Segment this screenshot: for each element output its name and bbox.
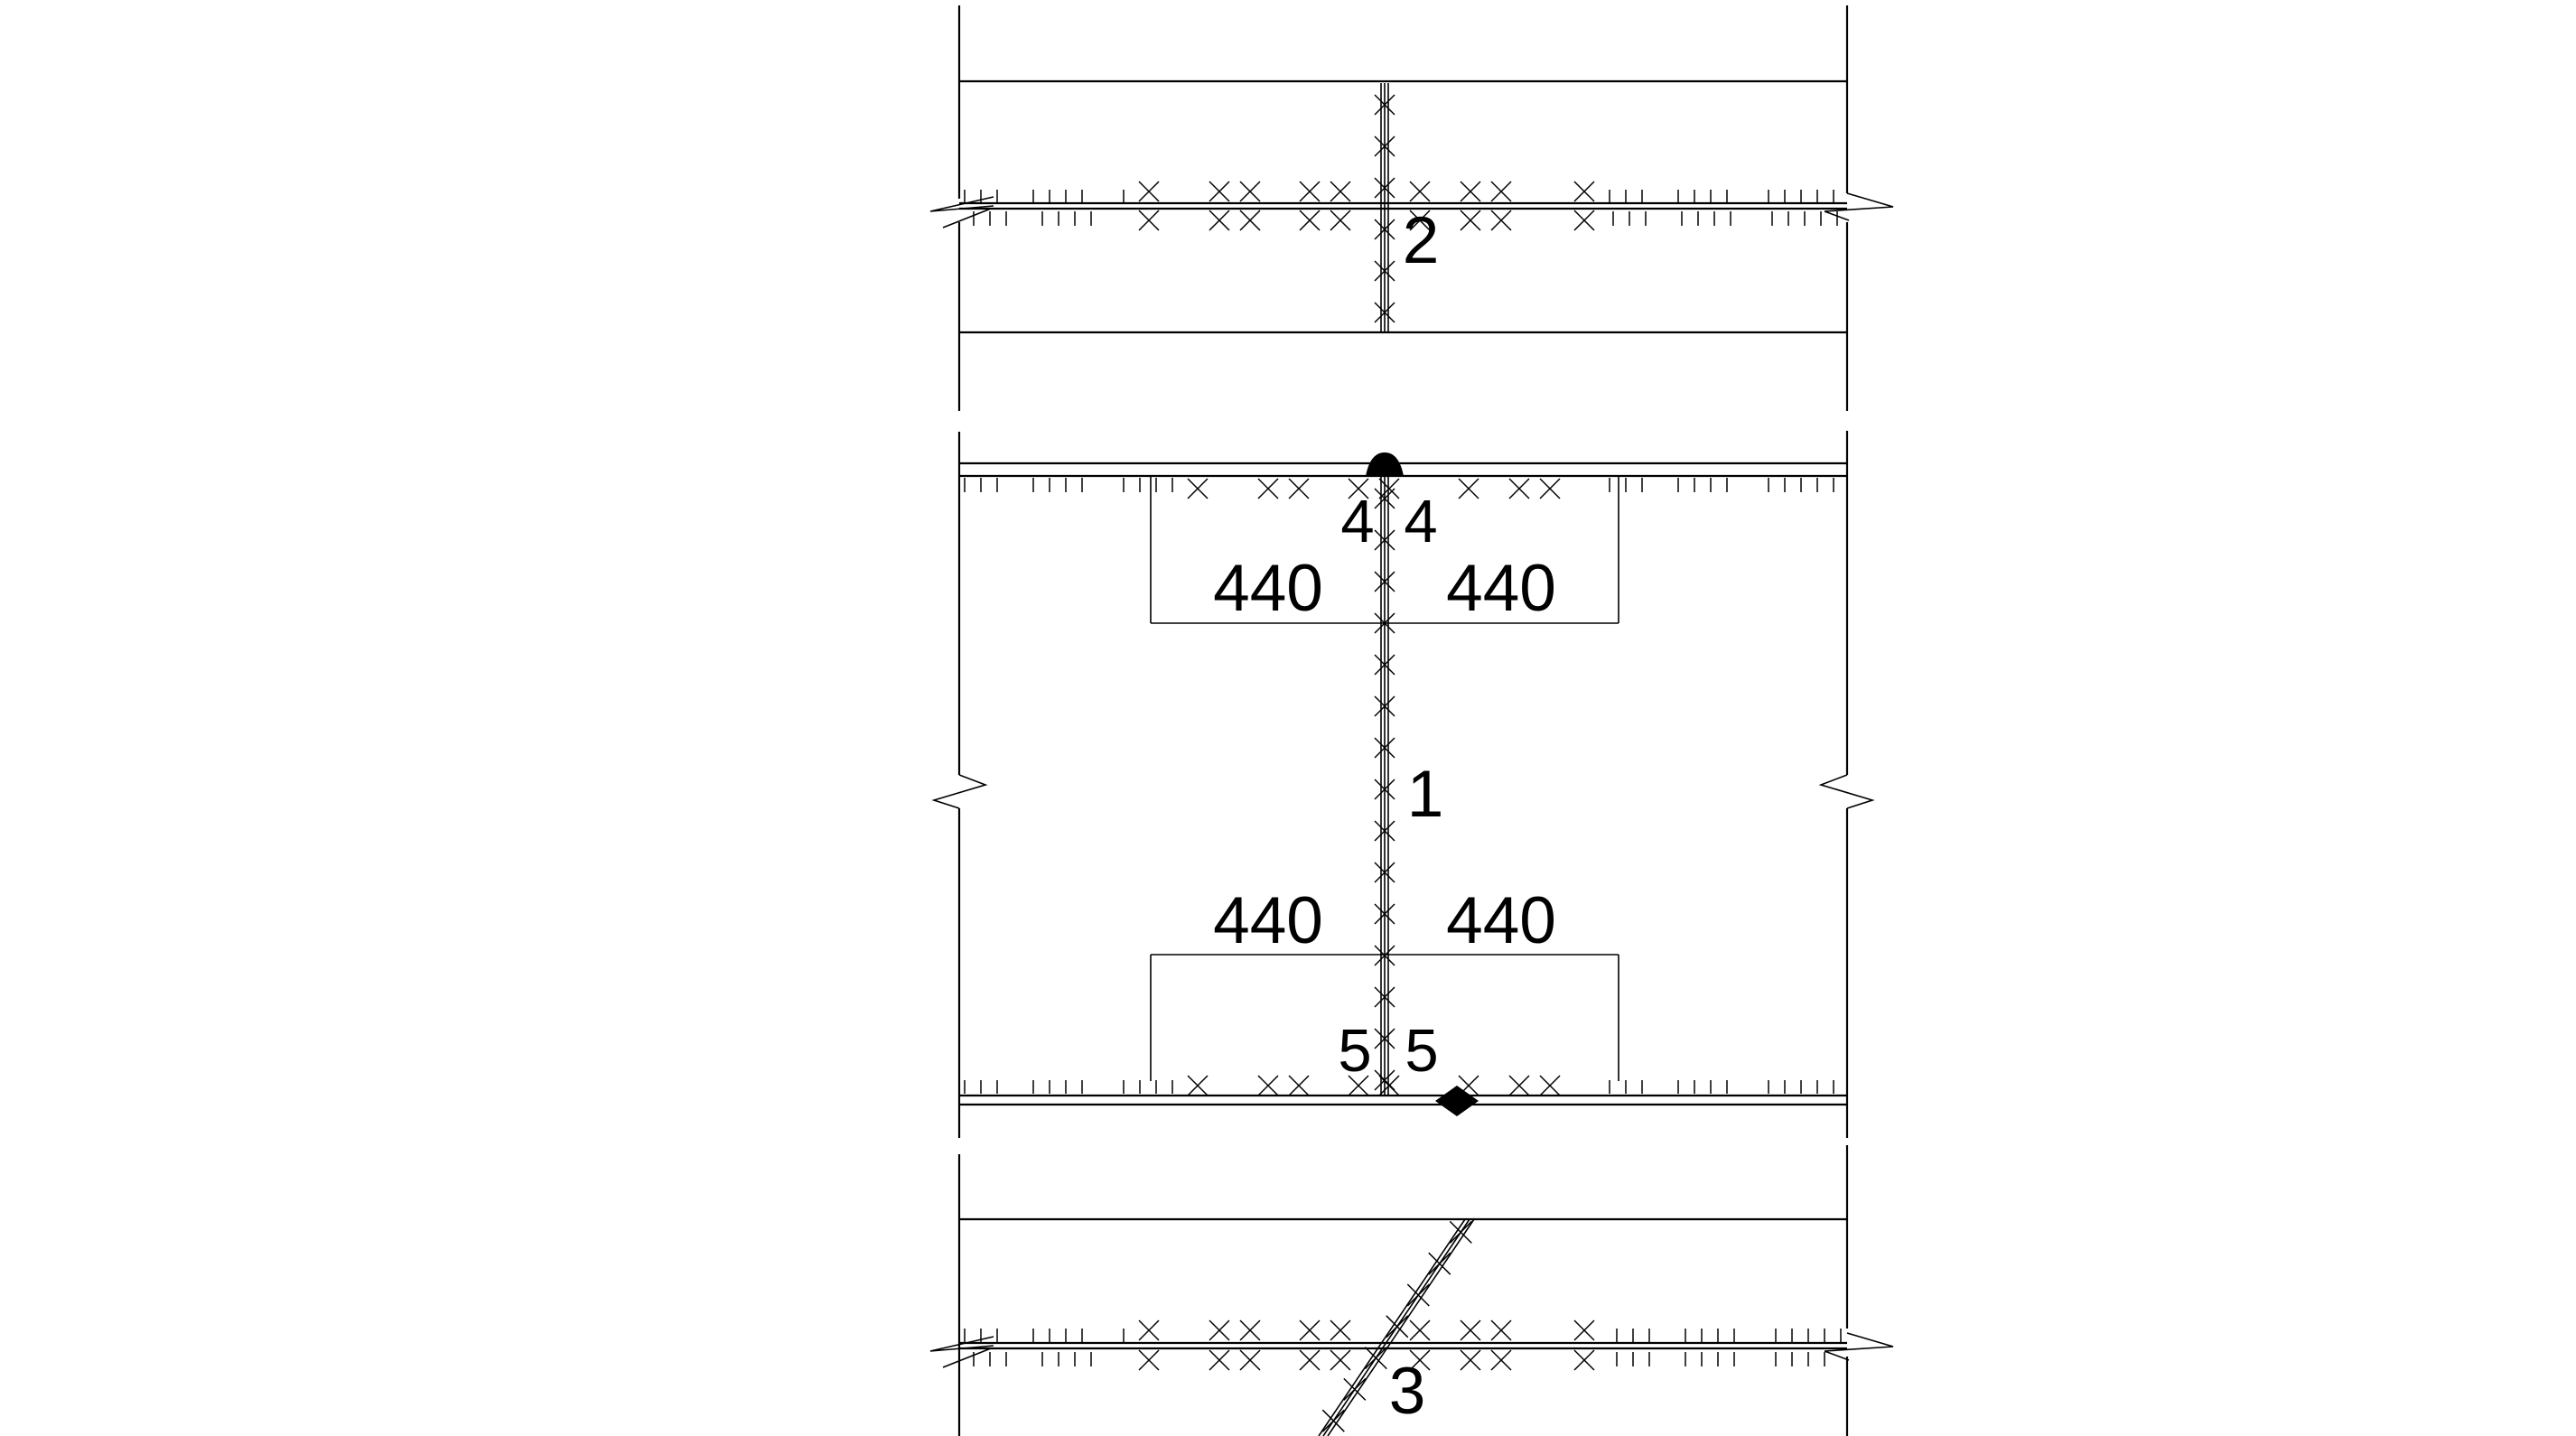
dimension-label-bottom-left: 440 — [1213, 884, 1323, 957]
weld-number-label-middle: 1 — [1407, 758, 1444, 831]
weld-size-label-top-right: 4 — [1404, 488, 1437, 555]
weld-size-label-bottom-left: 5 — [1338, 1017, 1371, 1085]
dimension-label-top-right: 440 — [1446, 552, 1556, 625]
break-symbol-right-border — [1821, 775, 1872, 808]
weld-drawing-canvas: 2 4 4 440 440 1 440 440 5 5 3 — [0, 0, 2576, 1436]
break-symbol-left — [943, 1348, 991, 1367]
break-symbol-left-border — [934, 775, 985, 808]
dimension-label-top-left: 440 — [1213, 552, 1323, 625]
weld-start-marker-top — [1366, 452, 1404, 476]
weld-number-label-bottom: 3 — [1389, 1355, 1426, 1428]
weld-size-label-bottom-right: 5 — [1405, 1017, 1438, 1085]
dimension-label-bottom-right: 440 — [1446, 884, 1556, 957]
weld-number-label-top: 2 — [1403, 204, 1440, 277]
weld-drawing: 2 4 4 440 440 1 440 440 5 5 3 — [0, 0, 2576, 1436]
weld-end-marker-bottom — [1435, 1086, 1479, 1116]
weld-size-label-top-left: 4 — [1340, 488, 1374, 555]
break-symbol-right — [1825, 1351, 1849, 1360]
break-symbol-left — [943, 209, 991, 228]
